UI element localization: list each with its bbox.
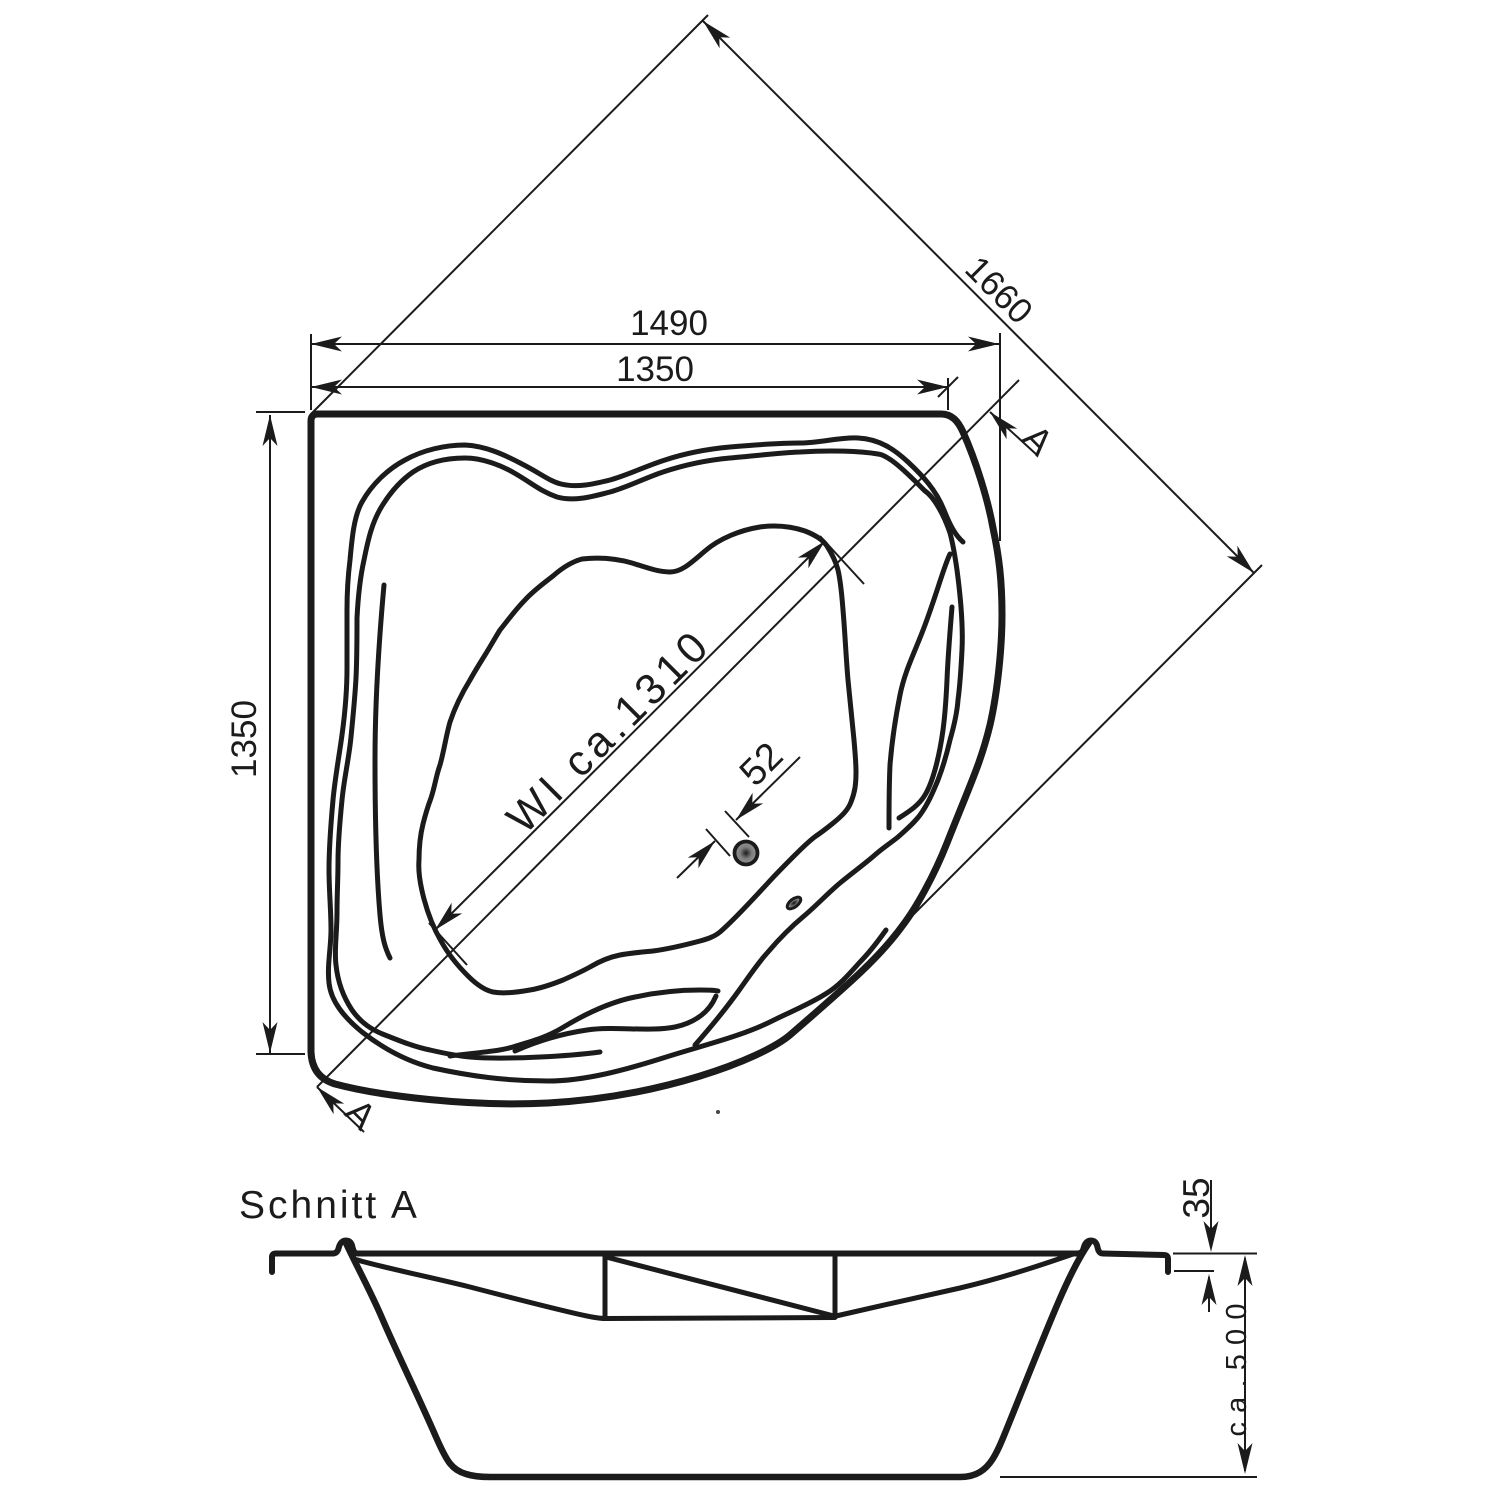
svg-text:35: 35: [1176, 1177, 1217, 1218]
svg-text:1490: 1490: [630, 304, 708, 343]
svg-text:1350: 1350: [616, 350, 694, 389]
svg-text:1350: 1350: [225, 700, 264, 778]
svg-text:Schnitt A: Schnitt A: [239, 1184, 420, 1227]
